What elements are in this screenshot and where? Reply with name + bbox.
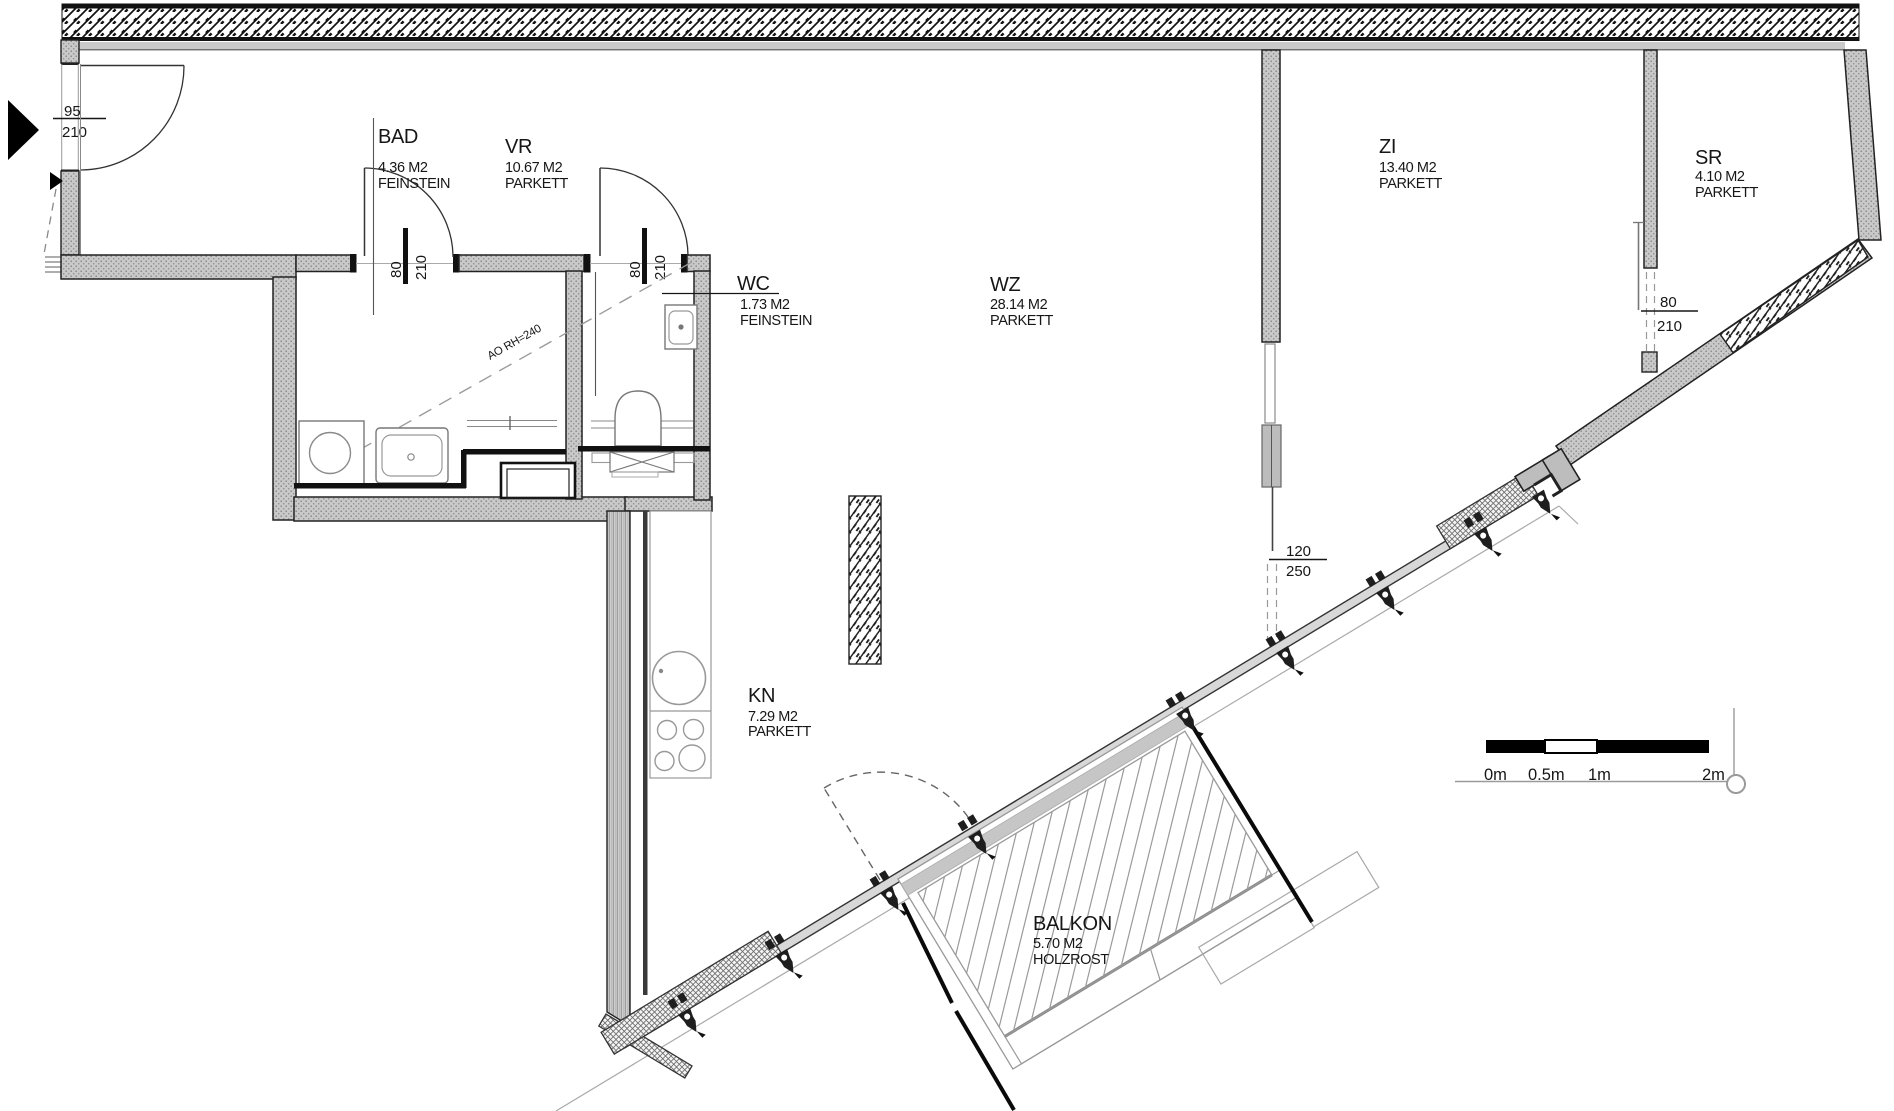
svg-text:SR: SR [1695, 147, 1722, 169]
svg-text:BALKON: BALKON [1033, 913, 1112, 935]
svg-text:210: 210 [62, 124, 87, 141]
svg-text:PARKETT: PARKETT [1695, 185, 1759, 201]
svg-text:HOLZROST: HOLZROST [1033, 952, 1109, 968]
svg-text:28.14 M2: 28.14 M2 [990, 297, 1048, 313]
svg-text:VR: VR [505, 136, 532, 158]
svg-text:210: 210 [413, 255, 430, 280]
svg-text:PARKETT: PARKETT [748, 724, 812, 740]
svg-text:250: 250 [1286, 563, 1311, 580]
svg-text:13.40 M2: 13.40 M2 [1379, 160, 1437, 176]
svg-text:PARKETT: PARKETT [990, 313, 1054, 329]
svg-text:WC: WC [737, 273, 770, 295]
svg-text:7.29 M2: 7.29 M2 [748, 709, 798, 725]
svg-text:PARKETT: PARKETT [505, 176, 569, 192]
svg-text:4.10 M2: 4.10 M2 [1695, 169, 1745, 185]
svg-text:2m: 2m [1702, 766, 1725, 784]
svg-text:KN: KN [748, 685, 775, 707]
svg-text:1.73 M2: 1.73 M2 [740, 297, 790, 313]
svg-text:4.36 M2: 4.36 M2 [378, 160, 428, 176]
svg-text:80: 80 [627, 261, 644, 278]
svg-text:95: 95 [64, 103, 81, 120]
svg-text:5.70 M2: 5.70 M2 [1033, 936, 1083, 952]
svg-text:80: 80 [1660, 294, 1677, 311]
svg-text:80: 80 [388, 261, 405, 278]
svg-text:120: 120 [1286, 543, 1311, 560]
svg-text:ZI: ZI [1379, 136, 1396, 158]
svg-text:PARKETT: PARKETT [1379, 176, 1443, 192]
svg-text:FEINSTEIN: FEINSTEIN [740, 313, 812, 329]
svg-text:FEINSTEIN: FEINSTEIN [378, 176, 450, 192]
svg-text:10.67 M2: 10.67 M2 [505, 160, 563, 176]
svg-text:1m: 1m [1588, 766, 1611, 784]
svg-text:0m: 0m [1484, 766, 1507, 784]
svg-text:WZ: WZ [990, 274, 1020, 296]
svg-text:210: 210 [1657, 318, 1682, 335]
svg-text:0.5m: 0.5m [1528, 766, 1565, 784]
svg-text:BAD: BAD [378, 126, 418, 148]
